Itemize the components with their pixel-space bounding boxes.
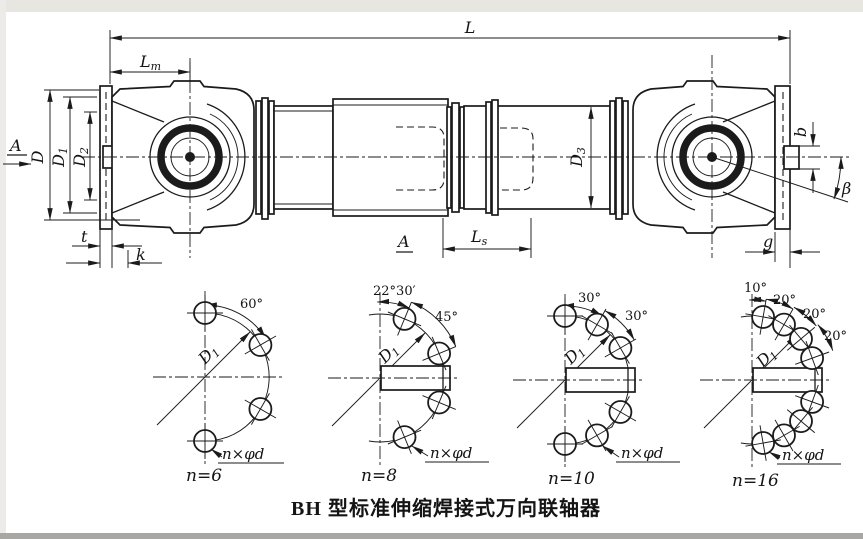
technical-drawing: L Lm A D D1 D2 t k bbox=[0, 0, 863, 539]
drawing-caption: BH 型标准伸缩焊接式万向联轴器 bbox=[291, 496, 601, 520]
angle-dimension-arc bbox=[377, 302, 409, 308]
section-mark-A: A bbox=[396, 232, 413, 252]
angle-label: 10° bbox=[744, 281, 767, 296]
section-label: A bbox=[396, 232, 410, 251]
dimension-g: g bbox=[745, 229, 820, 268]
right-flange-bolt bbox=[784, 146, 799, 169]
bolt-count-label: n=8 bbox=[361, 466, 397, 486]
bolt-circle-dia-label: D1 bbox=[560, 340, 590, 370]
dim-label-Lm: Lm bbox=[139, 52, 161, 73]
dim-label-g: g bbox=[763, 232, 773, 251]
view-arrow-label: A bbox=[8, 136, 22, 155]
dim-label-Ls: Ls bbox=[470, 227, 488, 248]
view-arrow-A: A bbox=[3, 136, 31, 164]
dim-label-D2: D2 bbox=[70, 147, 91, 168]
scan-edge-top bbox=[0, 0, 863, 12]
left-weld-collars bbox=[256, 98, 274, 219]
angle-label: 20° bbox=[773, 293, 796, 308]
bolt-count-label: n=6 bbox=[186, 466, 222, 486]
dim-label-t: t bbox=[81, 227, 88, 246]
holes-spec-label: n×φd bbox=[222, 445, 264, 463]
dimension-k: k bbox=[66, 245, 162, 268]
bolt-circle-diagram-n10: 30° 30° D1 n×φd n=10 bbox=[513, 291, 680, 489]
angle-label: 20° bbox=[824, 329, 847, 344]
dim-label-D: D bbox=[28, 150, 47, 164]
bolt-circle-diagram-n16: 10° 20° 20° 20° D1 n×φd n=16 bbox=[700, 281, 847, 491]
bolt-circle-diagram-n6: 60° D1 n×φd n=6 bbox=[153, 291, 285, 486]
bolt-circle-dia-label: D1 bbox=[194, 340, 224, 370]
scan-edge-bottom bbox=[0, 533, 863, 539]
holes-spec-label: n×φd bbox=[782, 446, 824, 464]
dim-label-beta: β bbox=[841, 179, 851, 198]
angle-label: 22°30′ bbox=[373, 284, 416, 299]
dimension-Lm: Lm bbox=[110, 52, 190, 80]
dimension-Ls: Ls bbox=[443, 218, 531, 258]
bolt-circle-diagram-n8: 22°30′ 45° D1 n×φd n=8 bbox=[328, 284, 489, 486]
angle-label: 20° bbox=[803, 307, 826, 322]
angle-label: 30° bbox=[625, 309, 648, 324]
angle-label: 45° bbox=[435, 310, 458, 325]
tube-sleeve bbox=[333, 99, 448, 216]
angle-label: 60° bbox=[240, 297, 263, 312]
scan-edge-left bbox=[0, 0, 6, 539]
dim-label-D1: D1 bbox=[49, 147, 70, 168]
bolt-count-label: n=16 bbox=[732, 471, 779, 491]
dimension-D2: D2 bbox=[70, 112, 97, 200]
dimension-L: L bbox=[110, 18, 790, 84]
holes-spec-label: n×φd bbox=[430, 444, 472, 462]
bolt-circle-dia-label: D1 bbox=[374, 339, 404, 369]
dim-label-k: k bbox=[136, 245, 146, 264]
dimension-t: t bbox=[72, 227, 142, 268]
drawing-page: L Lm A D D1 D2 t k bbox=[0, 0, 863, 539]
tube-small bbox=[274, 106, 333, 209]
dim-label-L: L bbox=[464, 18, 476, 37]
angle-label: 30° bbox=[578, 291, 601, 306]
dim-label-b: b bbox=[791, 127, 810, 137]
holes-spec-label: n×φd bbox=[621, 444, 663, 462]
bolt-count-label: n=10 bbox=[548, 469, 595, 489]
